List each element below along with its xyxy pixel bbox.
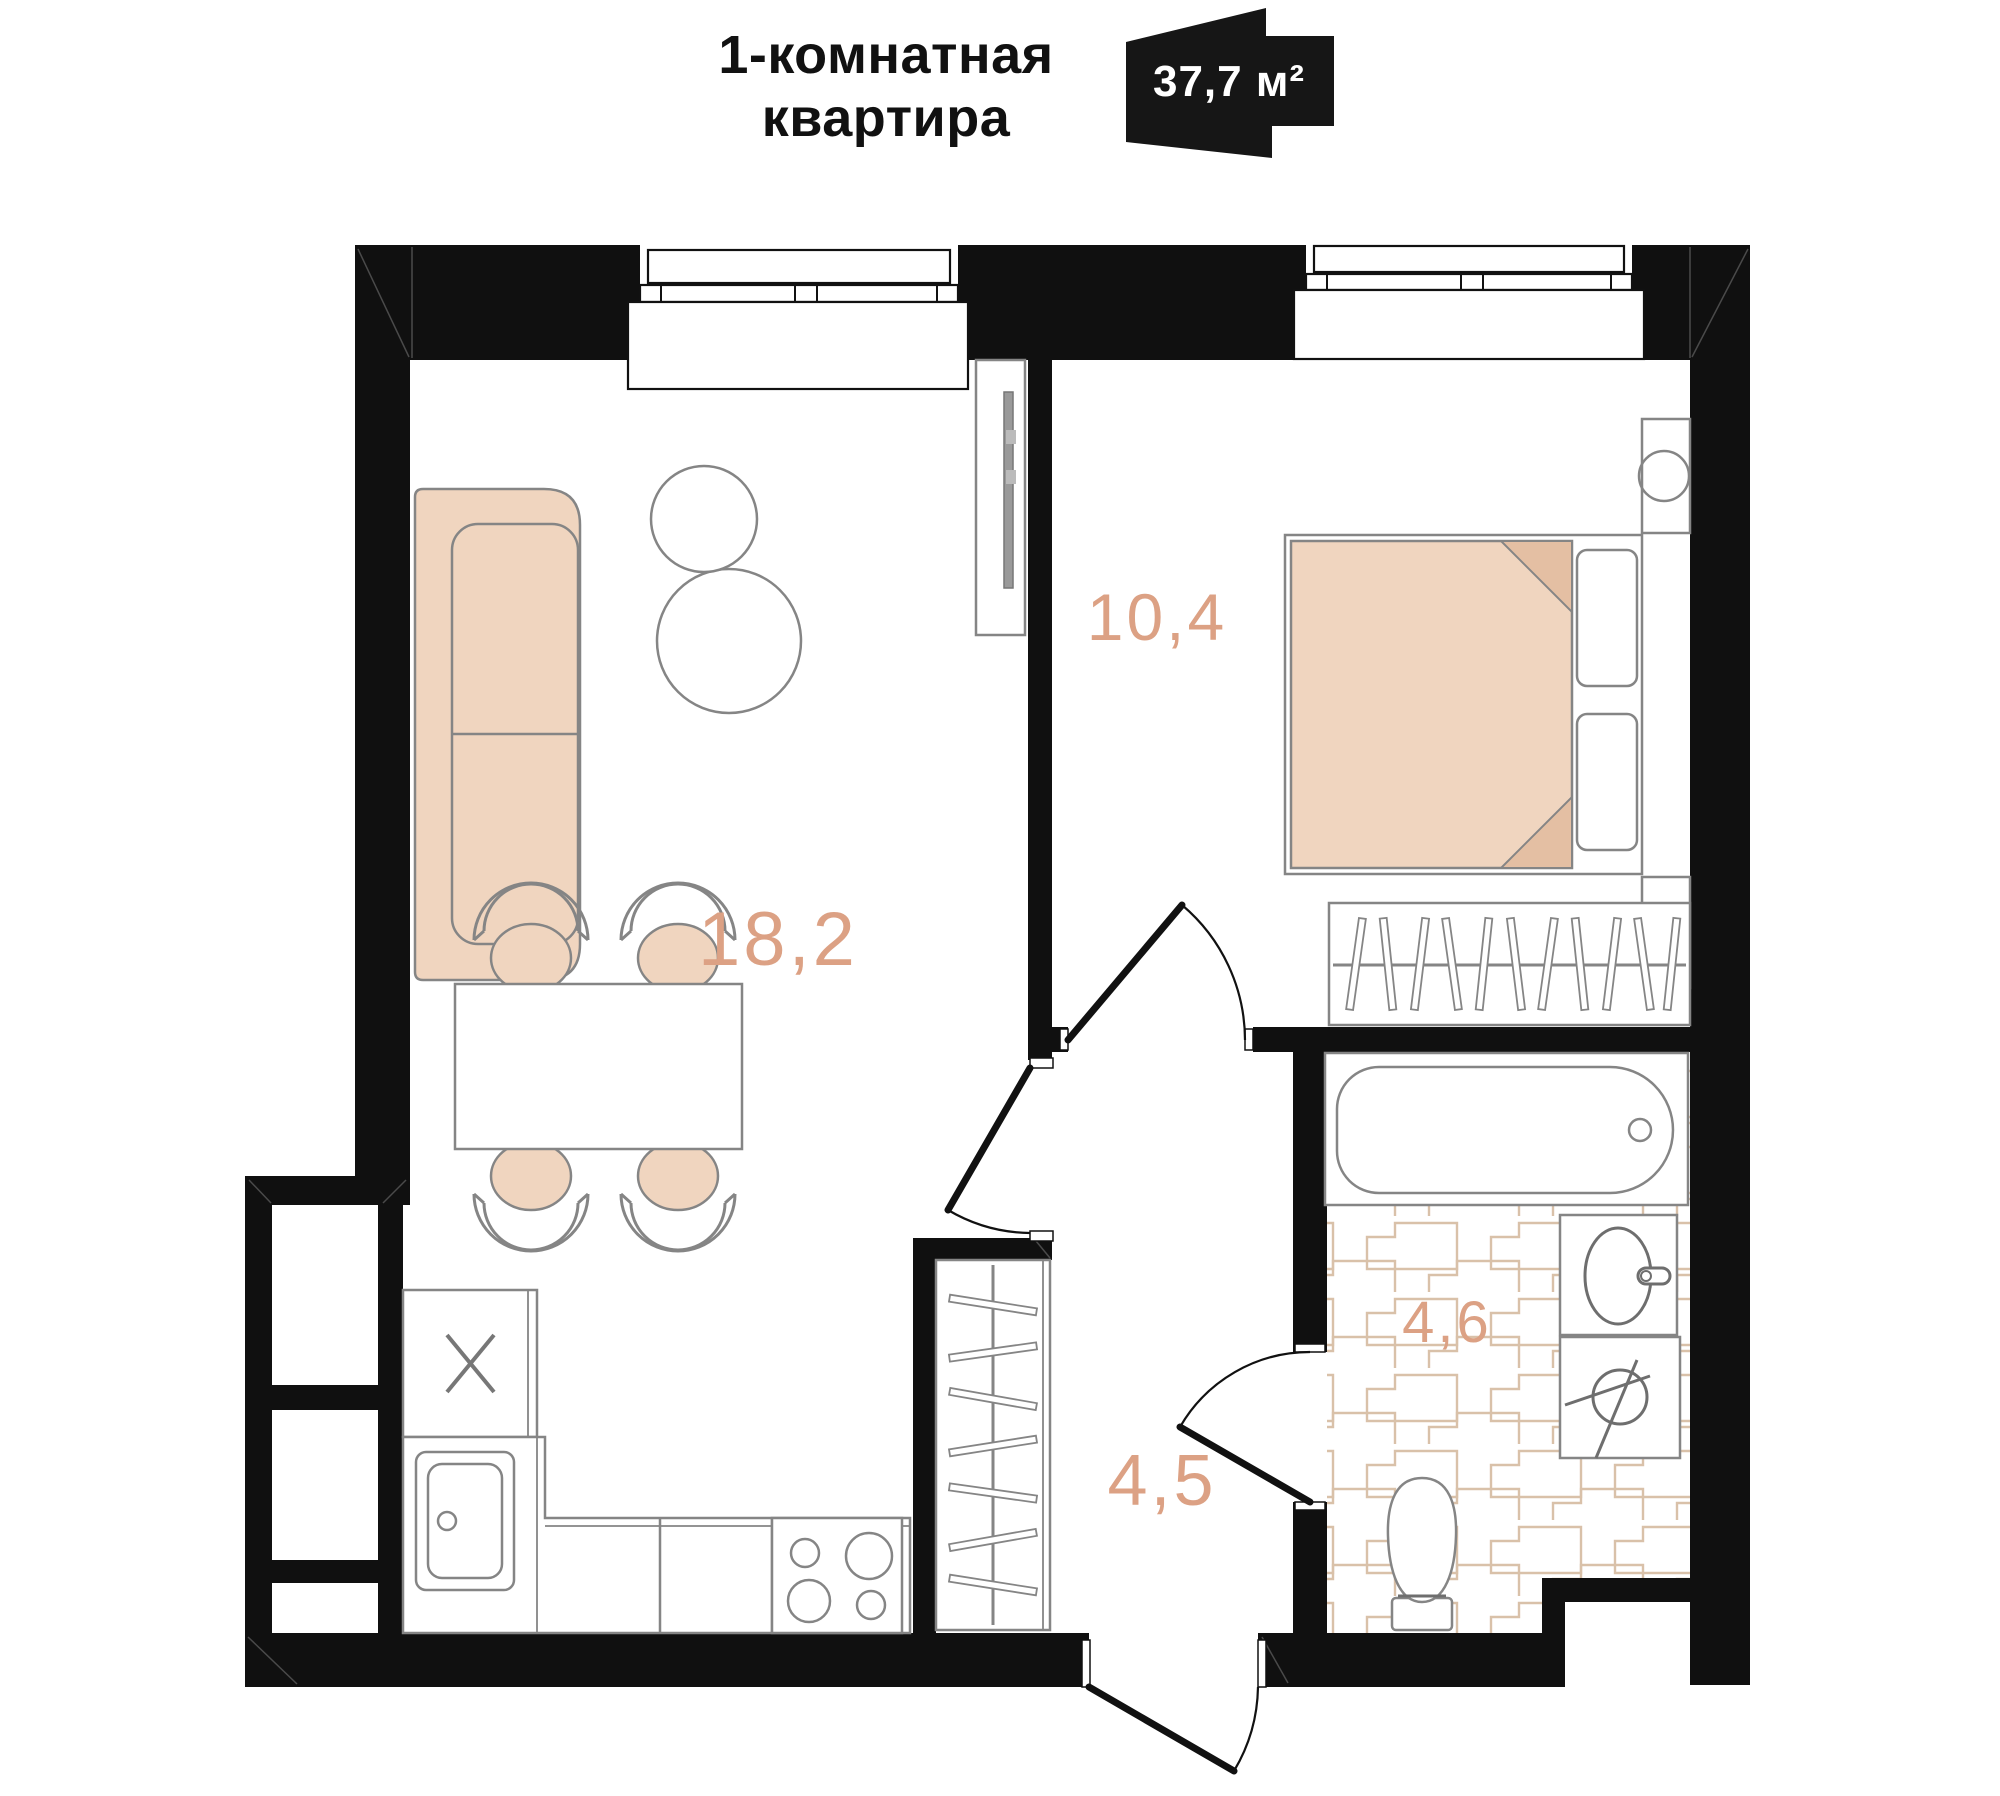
tv-unit [976, 360, 1025, 635]
wall-bath-step-col [1542, 1578, 1565, 1687]
room-label-living: 18,2 [698, 897, 858, 982]
fridge-niche [403, 1290, 537, 1437]
door-entrance [1082, 1640, 1266, 1771]
kitchen-sink [416, 1452, 514, 1590]
sofa [415, 489, 580, 980]
kitchen [403, 1290, 910, 1633]
wall-bathroom-left-upper [1293, 1050, 1327, 1352]
bed [1285, 535, 1642, 874]
pillow [1577, 550, 1637, 686]
window-living [628, 250, 968, 389]
dining-table [455, 984, 742, 1149]
washing-machine [1560, 1337, 1680, 1458]
room-label-bathroom: 4,6 [1402, 1290, 1492, 1355]
faucet-icon [1638, 1268, 1670, 1284]
washbasin [1560, 1215, 1677, 1335]
wall-right [1690, 245, 1750, 1685]
pillow [1577, 714, 1637, 850]
shaft-right [378, 1205, 403, 1633]
chair [474, 1142, 588, 1251]
wall-bottom-left [245, 1633, 1089, 1687]
chair [621, 1142, 735, 1251]
coffee-tables [651, 466, 801, 713]
wall-partition-living-bedroom [1028, 360, 1052, 1060]
room-label-hallway: 4,5 [1107, 1441, 1216, 1521]
wall-top-middle [958, 245, 1306, 360]
hall-closet [936, 1260, 1050, 1630]
floorplan-page: 1-комнатная квартира 37,7 м² [0, 0, 2000, 1796]
door-kitchen-hall [948, 1058, 1053, 1241]
bathtub [1325, 1053, 1688, 1205]
shaft-bar1 [272, 1385, 378, 1410]
window-bedroom [1294, 246, 1644, 359]
toilet [1388, 1478, 1456, 1630]
wall-bathroom-left-lower [1293, 1502, 1327, 1687]
wall-bedroom-bottom [1253, 1027, 1690, 1052]
wall-closet-left [913, 1260, 936, 1633]
stove [772, 1518, 902, 1633]
shaft-left [245, 1176, 272, 1687]
floorplan: 18,2 10,4 4,5 4,6 [0, 0, 2000, 1796]
wardrobe [1329, 903, 1690, 1025]
shaft-bar2 [272, 1560, 378, 1583]
wall-left [355, 245, 410, 1205]
nightstand-top [1639, 419, 1690, 533]
door-bedroom [1060, 905, 1253, 1050]
wall-bottom-bath [1327, 1633, 1565, 1687]
room-label-bedroom: 10,4 [1087, 580, 1227, 654]
